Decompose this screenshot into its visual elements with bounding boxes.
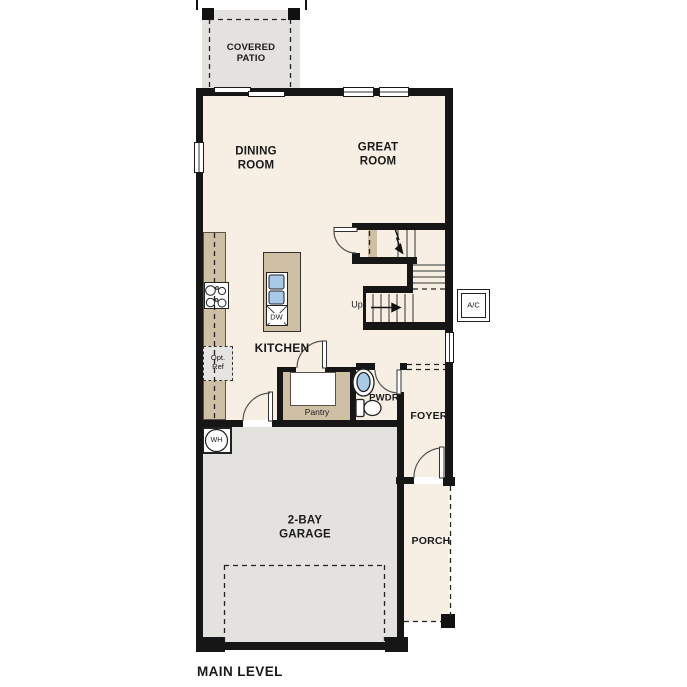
foyer-label: FOYER xyxy=(404,410,454,422)
wall-garage-bottom-left-cap xyxy=(196,637,225,652)
patio-post-left xyxy=(202,8,214,20)
wall-pantry-left xyxy=(277,367,283,427)
island-sink-unit xyxy=(266,272,288,306)
wall-stair-bottom xyxy=(363,322,452,330)
great-room-label: GREAT ROOM xyxy=(343,141,413,168)
wall-garage-bottom-right-cap xyxy=(385,637,408,652)
porch-label: PORCH xyxy=(405,535,457,547)
wall-exterior-right xyxy=(445,88,453,484)
powder-room-label: PWDR xyxy=(359,392,409,403)
plan-title: MAIN LEVEL xyxy=(197,664,337,680)
ac-label: A/C xyxy=(461,301,487,310)
wall-pantry-top-left xyxy=(277,367,296,372)
kitchen-counter xyxy=(203,232,226,420)
water-heater-label: WH xyxy=(207,436,227,444)
covered-patio-label: COVERED PATIO xyxy=(221,42,281,64)
garage-label: 2-BAY GARAGE xyxy=(275,514,335,541)
wall-stair-top xyxy=(352,223,452,230)
wall-garage-top-right xyxy=(272,420,404,427)
window-dining xyxy=(194,142,204,173)
porch-post xyxy=(441,614,455,628)
wall-garage-top-left xyxy=(203,420,243,427)
wall-powder-foyer-garage xyxy=(397,392,404,652)
dining-room-label: DINING ROOM xyxy=(221,145,291,172)
wall-pantry-right xyxy=(350,367,356,427)
pantry-shelf-opening xyxy=(290,372,336,406)
stairs-up-label: Up xyxy=(345,300,369,311)
wall-landing-bottom xyxy=(363,286,413,293)
floor-plan: COVERED PATIO DINING ROOM GREAT ROOM KIT… xyxy=(0,0,687,687)
wall-foyer-front-corner xyxy=(443,477,455,486)
kitchen-label: KITCHEN xyxy=(232,341,332,355)
window-great-room-1 xyxy=(343,87,374,97)
lot-line-right xyxy=(305,0,307,10)
wall-foyer-front xyxy=(396,477,414,484)
sliding-door-panel-1 xyxy=(214,87,251,93)
wall-powder-top-left xyxy=(356,363,375,370)
window-hall xyxy=(445,332,454,363)
porch-floor xyxy=(404,484,449,621)
sliding-door-panel-2 xyxy=(248,91,285,97)
dishwasher-label: DW xyxy=(267,314,287,323)
patio-post-right xyxy=(288,8,300,20)
lot-line-left xyxy=(196,0,198,10)
optional-refrigerator-label: Opt. Ref xyxy=(206,354,230,372)
stair-chase xyxy=(368,230,377,257)
wall-pantry-top-right xyxy=(325,367,356,372)
window-great-room-2 xyxy=(379,87,409,97)
wall-powder-top-right xyxy=(400,363,407,370)
pantry-label: Pantry xyxy=(292,407,342,417)
wall-garage-door-header xyxy=(203,642,406,650)
cooktop xyxy=(204,282,229,309)
